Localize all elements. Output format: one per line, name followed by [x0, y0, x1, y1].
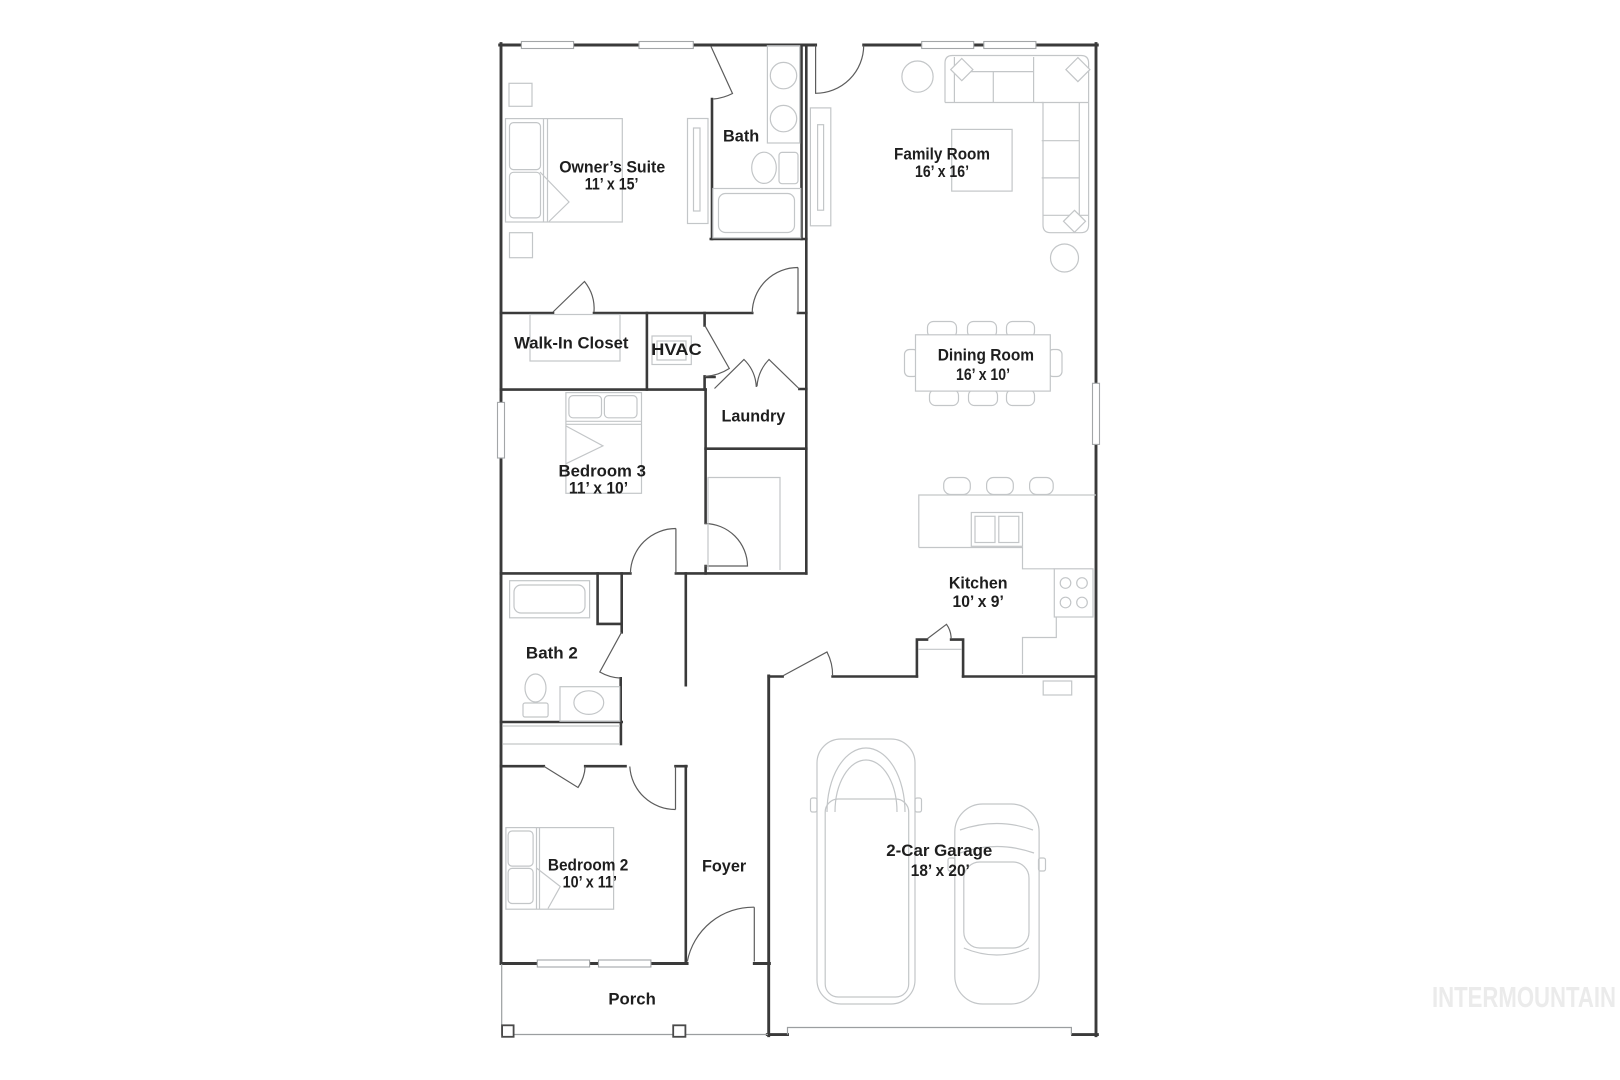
svg-text:11’ x 10’: 11’ x 10’	[569, 479, 628, 497]
svg-text:Bedroom 2: Bedroom 2	[548, 857, 629, 875]
svg-text:11’ x 15’: 11’ x 15’	[585, 176, 639, 194]
svg-text:Laundry: Laundry	[722, 408, 787, 426]
svg-text:HVAC: HVAC	[651, 341, 702, 359]
svg-text:10’ x 9’: 10’ x 9’	[953, 593, 1004, 611]
svg-text:Kitchen: Kitchen	[949, 575, 1008, 593]
svg-text:16’ x 10’: 16’ x 10’	[956, 366, 1010, 384]
svg-text:Bath: Bath	[723, 127, 759, 145]
svg-text:Bedroom 3: Bedroom 3	[559, 463, 646, 481]
svg-text:Family Room: Family Room	[894, 146, 990, 164]
svg-text:2-Car Garage: 2-Car Garage	[886, 842, 992, 860]
svg-text:16’ x 16’: 16’ x 16’	[915, 163, 969, 181]
svg-text:Walk-In Closet: Walk-In Closet	[514, 334, 629, 352]
svg-text:10’ x 11’: 10’ x 11’	[563, 874, 617, 892]
svg-text:Porch: Porch	[608, 991, 655, 1009]
svg-text:Bath 2: Bath 2	[526, 645, 578, 663]
svg-text:INTERMOUNTAIN: INTERMOUNTAIN	[1432, 982, 1616, 1014]
svg-text:18’ x 20’: 18’ x 20’	[911, 862, 970, 880]
svg-text:Dining Room: Dining Room	[938, 347, 1034, 365]
svg-text:Owner’s Suite: Owner’s Suite	[559, 158, 665, 176]
svg-text:Foyer: Foyer	[702, 858, 747, 876]
